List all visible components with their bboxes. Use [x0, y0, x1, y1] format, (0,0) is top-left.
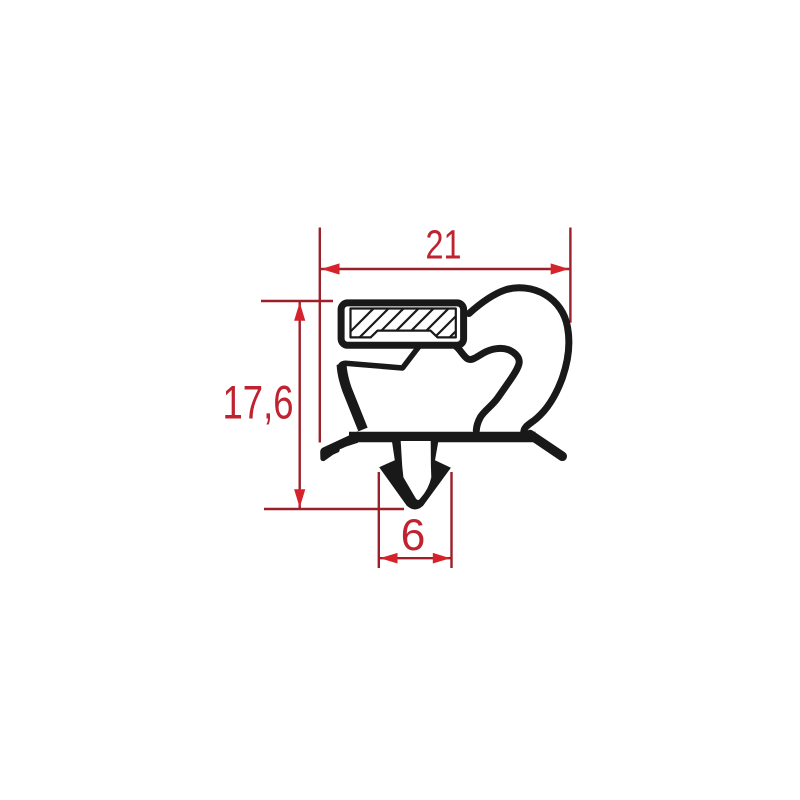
svg-text:6: 6 — [401, 511, 426, 560]
svg-text:21: 21 — [426, 222, 462, 268]
svg-text:17,6: 17,6 — [223, 375, 294, 428]
